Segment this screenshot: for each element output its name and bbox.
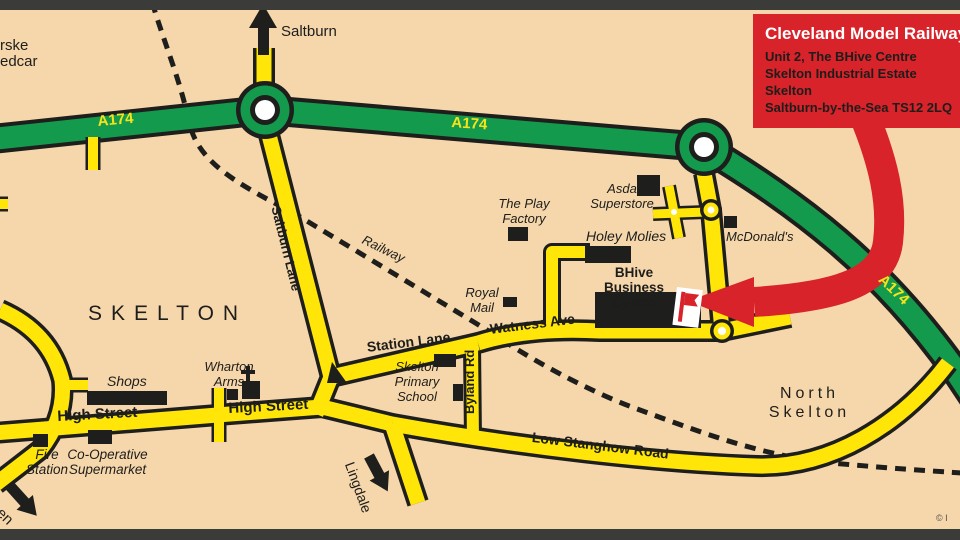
area-label-skelton: SKELTON (88, 303, 247, 325)
mini-roundabout-industrial (700, 199, 722, 221)
top-frame-bar (0, 0, 960, 10)
building-fire-station (33, 434, 48, 447)
poi-label-shops: Shops (107, 374, 147, 389)
poi-label-mcdonalds: McDonald's (726, 230, 794, 244)
play-factory-line2: Factory (498, 211, 550, 226)
poi-label-bhive: BHive Business Centre (590, 265, 678, 310)
north-skelton-line1: North (752, 384, 867, 403)
copyright-text: © I (936, 514, 948, 523)
bhive-line1: BHive Business (590, 265, 678, 295)
poi-label-wharton-arms: Wharton Arms (203, 359, 255, 389)
callout-line-4: Saltburn-by-the-Sea TS12 2LQ (765, 99, 960, 116)
road-label-a174-mid: A174 (451, 115, 488, 133)
poi-label-holey-molies: Holey Molies (586, 229, 666, 244)
coop-line1: Co-Operative (60, 447, 155, 462)
roundabout-west (236, 81, 294, 139)
callout-line-1: Unit 2, The BHive Centre (765, 48, 960, 65)
poi-label-school: Skelton Primary School (391, 359, 443, 404)
wharton-line1: Wharton (203, 359, 255, 374)
coop-line2: Supermarket (60, 462, 155, 477)
building-wharton-small (227, 389, 238, 400)
royal-mail-line1: Royal (462, 285, 502, 300)
poi-label-play-factory: The Play Factory (498, 196, 550, 226)
wharton-line2: Arms (203, 374, 255, 389)
mini-roundabout-watness (710, 319, 734, 343)
school-line2: Primary (391, 374, 443, 389)
saltburn-arrow-icon (249, 4, 277, 55)
asda-junction-dot (671, 209, 677, 215)
building-coop (88, 430, 112, 444)
royal-mail-line2: Mail (462, 300, 502, 315)
bottom-frame-bar (0, 529, 960, 540)
label-saltburn-destination: Saltburn (281, 24, 337, 40)
label-marske-fragment-bottom: edcar (0, 54, 38, 70)
map-canvas: rske edcar Saltburn Green Lingdale © I S… (0, 0, 960, 540)
building-shops (87, 391, 167, 405)
poi-label-royal-mail: Royal Mail (462, 285, 502, 315)
building-mcdonalds (724, 216, 737, 228)
label-marske-fragment-top: rske (0, 38, 28, 54)
road-label-a174-west: A174 (97, 111, 134, 130)
play-factory-line1: The Play (498, 196, 550, 211)
callout-line-2: Skelton Industrial Estate (765, 65, 960, 82)
school-line1: Skelton (391, 359, 443, 374)
address-callout: Cleveland Model Railway Club Unit 2, The… (753, 14, 960, 128)
asda-line1: Asda (584, 181, 660, 196)
asda-line2: Superstore (584, 196, 660, 211)
school-line3: School (391, 389, 443, 404)
poi-label-asda: Asda Superstore (584, 181, 660, 211)
area-label-north-skelton: North Skelton (752, 384, 867, 422)
building-holey-molies (585, 246, 631, 263)
building-royal-mail (503, 297, 517, 307)
poi-label-coop: Co-Operative Supermarket (60, 447, 155, 477)
bhive-line2: Centre (590, 295, 678, 310)
road-label-byland-rd: Byland Rd (463, 350, 477, 414)
callout-title: Cleveland Model Railway Club (765, 24, 960, 44)
roundabout-east (675, 118, 733, 176)
callout-line-3: Skelton (765, 82, 960, 99)
north-skelton-line2: Skelton (752, 403, 867, 422)
building-play-factory (508, 227, 528, 241)
